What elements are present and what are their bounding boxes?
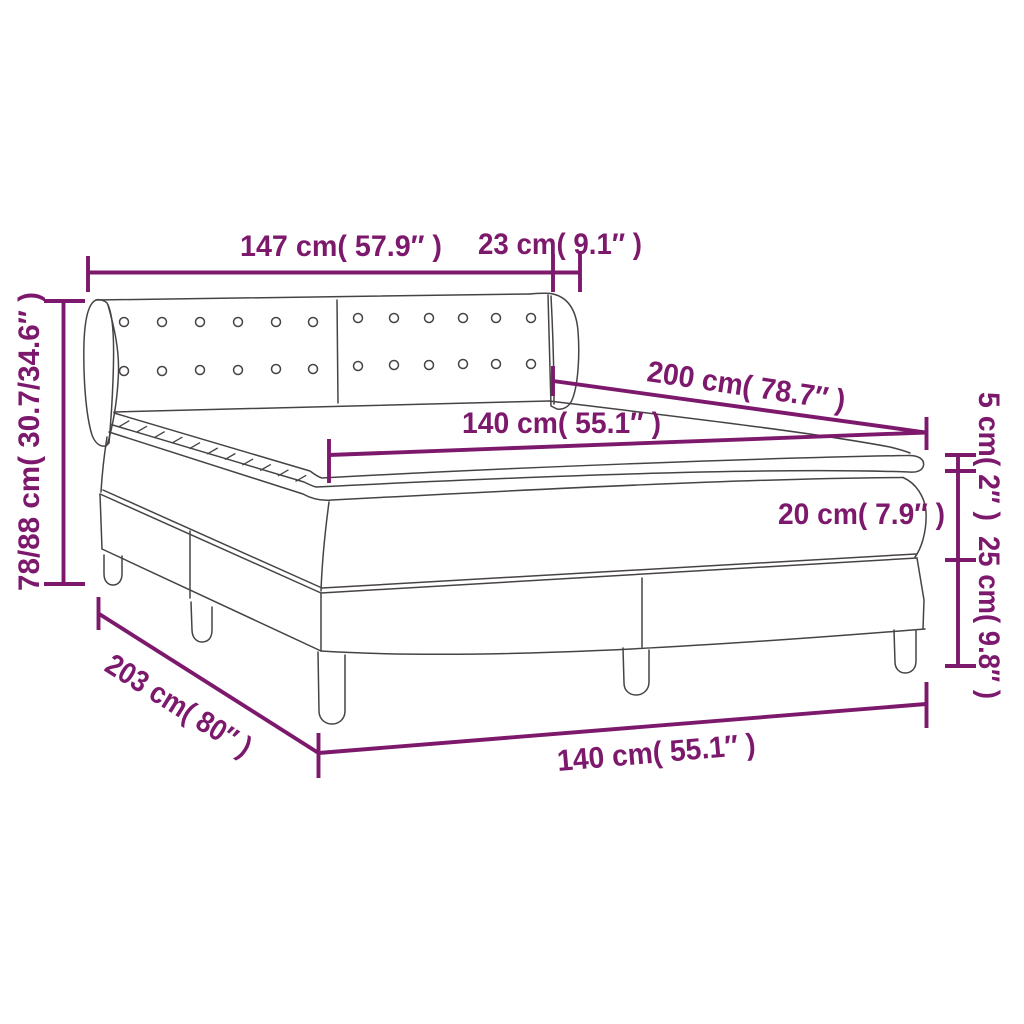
svg-text:5 cm( 2″ ): 5 cm( 2″ ) [972, 392, 1005, 521]
svg-text:147 cm( 57.9″ ): 147 cm( 57.9″ ) [240, 230, 442, 263]
svg-text:20 cm( 7.9″ ): 20 cm( 7.9″ ) [778, 498, 945, 531]
svg-text:78/88 cm( 30.7/34.6″ ): 78/88 cm( 30.7/34.6″ ) [13, 292, 46, 591]
svg-text:25 cm( 9.8″ ): 25 cm( 9.8″ ) [972, 536, 1005, 699]
svg-text:140 cm( 55.1″ ): 140 cm( 55.1″ ) [462, 407, 661, 440]
svg-text:23 cm( 9.1″ ): 23 cm( 9.1″ ) [478, 228, 642, 261]
